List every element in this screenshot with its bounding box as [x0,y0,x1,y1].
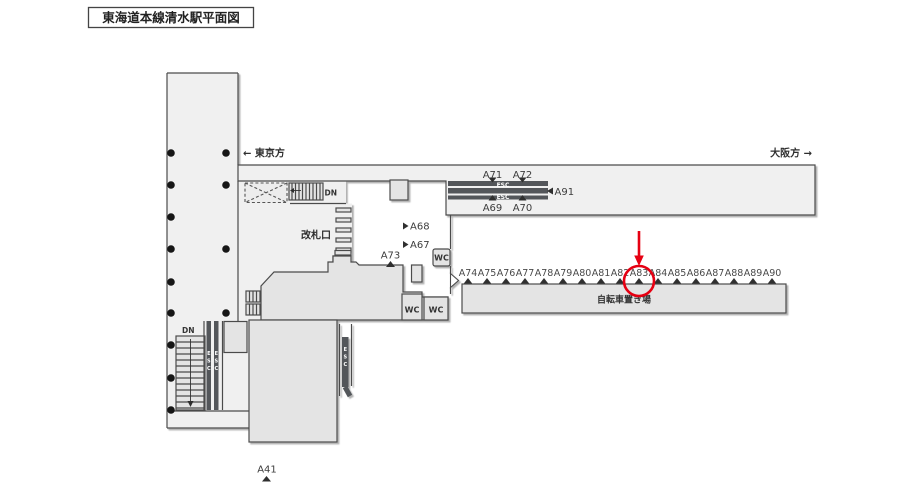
title-box: 東海道本線清水駅平面図 [89,8,254,28]
stairs-left [176,336,205,410]
service-box [390,180,408,200]
closed-area-box [245,183,287,203]
page-title: 東海道本線清水駅平面図 [102,10,240,25]
spot-a41: A41 [257,465,277,476]
spot-a77: A77 [516,268,535,279]
spot-a87: A87 [706,268,725,279]
wc-label-left: WC [405,306,420,315]
spot-a72: A72 [513,170,533,181]
escalator-label-1: ESC [497,182,510,189]
machine-room-box [224,322,247,353]
spot-a73: A73 [381,251,401,262]
station-floor-plan: ← 東京方 大阪方 → A71 A72 A69 A70 A91 ESC ESC … [0,0,919,491]
spot-a69: A69 [483,203,503,214]
marker-a41 [262,476,271,482]
direction-osaka: 大阪方 → [770,147,812,160]
plan-structures [167,73,815,442]
spot-a79: A79 [554,268,573,279]
exit-notch [451,274,459,288]
stairs-top [289,183,323,200]
spot-a78: A78 [535,268,554,279]
spot-a86: A86 [687,268,706,279]
highlight-arrow-head [634,256,644,267]
spot-a85: A85 [668,268,687,279]
marker-a67 [403,241,409,248]
spot-a91: A91 [555,187,575,198]
spot-a67: A67 [410,240,430,251]
dn-label-top: DN [325,189,338,198]
direction-tokyo: ← 東京方 [243,147,285,160]
escalator-label-2: ESC [497,194,510,201]
marker-a68 [403,223,409,230]
wc-label-top: WC [434,254,449,263]
spot-a75: A75 [478,268,497,279]
spot-a71: A71 [483,170,503,181]
spot-a81: A81 [592,268,611,279]
spot-a70: A70 [513,203,533,214]
spot-a80: A80 [573,268,592,279]
gate-label: 改札口 [301,229,331,242]
spot-a68: A68 [410,222,430,233]
escalator-v-label-2: ESC [214,351,218,372]
marker-a73 [386,261,395,267]
kiosk-box [412,265,423,282]
spot-a74: A74 [459,268,478,279]
escalator-v-label-3: ESC [343,347,347,368]
dn-label-left: DN [182,326,195,335]
spot-a83: A83 [630,268,649,279]
spot-a88: A88 [725,268,744,279]
spot-a90: A90 [763,268,782,279]
spot-a76: A76 [497,268,516,279]
spot-a89: A89 [744,268,763,279]
wc-label-right: WC [429,306,444,315]
building-lower-block [249,320,337,442]
escalator-v-label-1: ESC [207,351,211,372]
